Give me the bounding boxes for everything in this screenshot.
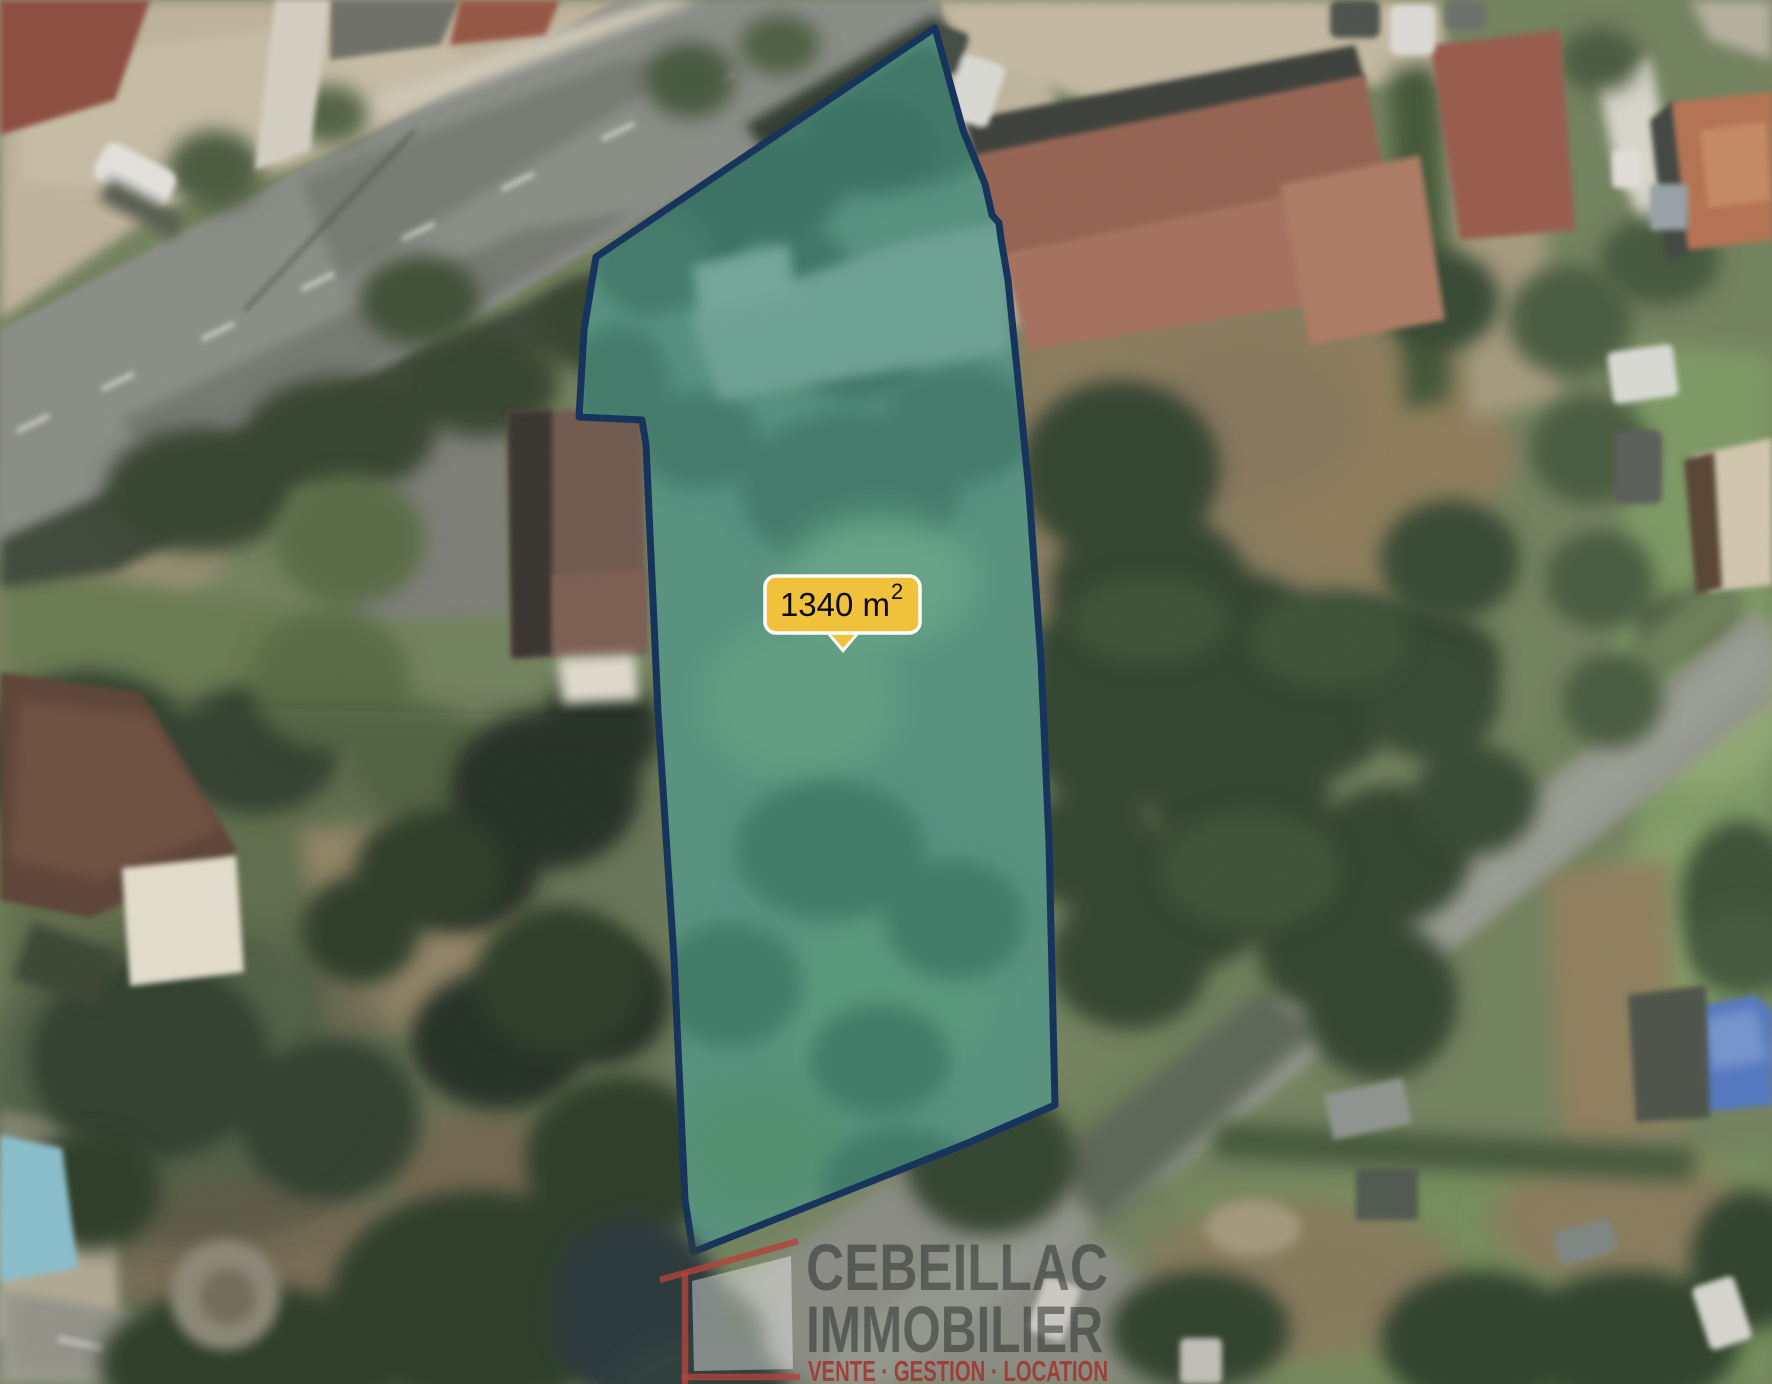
svg-text:2: 2 <box>891 579 903 604</box>
svg-text:1340 m: 1340 m <box>780 586 890 623</box>
svg-text:VENTE · GESTION · LOCATION: VENTE · GESTION · LOCATION <box>808 1356 1108 1384</box>
svg-text:IMMOBILIER: IMMOBILIER <box>806 1292 1103 1366</box>
